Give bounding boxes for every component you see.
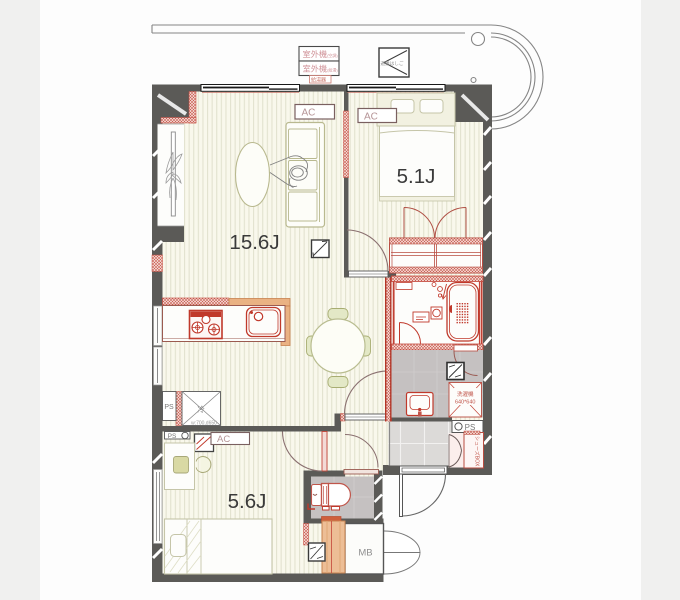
svg-text:給湯器: 給湯器 [311, 77, 326, 84]
svg-text:5.6J: 5.6J [228, 490, 267, 513]
svg-text:洗濯機: 洗濯機 [457, 390, 474, 398]
svg-text:PS: PS [164, 404, 174, 411]
svg-text:PS: PS [465, 423, 476, 432]
svg-text:AC: AC [364, 112, 378, 123]
svg-text:AC: AC [302, 108, 316, 119]
svg-text:MB: MB [358, 548, 372, 559]
svg-text:5.1J: 5.1J [397, 165, 436, 188]
svg-text:640*640: 640*640 [455, 400, 476, 406]
svg-text:シューズBOX: シューズBOX [474, 436, 481, 467]
svg-text:避難はしご: 避難はしご [381, 60, 404, 67]
svg-text:15.6J: 15.6J [229, 231, 279, 254]
svg-text:AC: AC [217, 434, 230, 445]
svg-text:PS: PS [168, 433, 177, 440]
svg-text:w:700,d650: w:700,d650 [191, 421, 217, 427]
svg-text:冷: 冷 [197, 404, 205, 414]
